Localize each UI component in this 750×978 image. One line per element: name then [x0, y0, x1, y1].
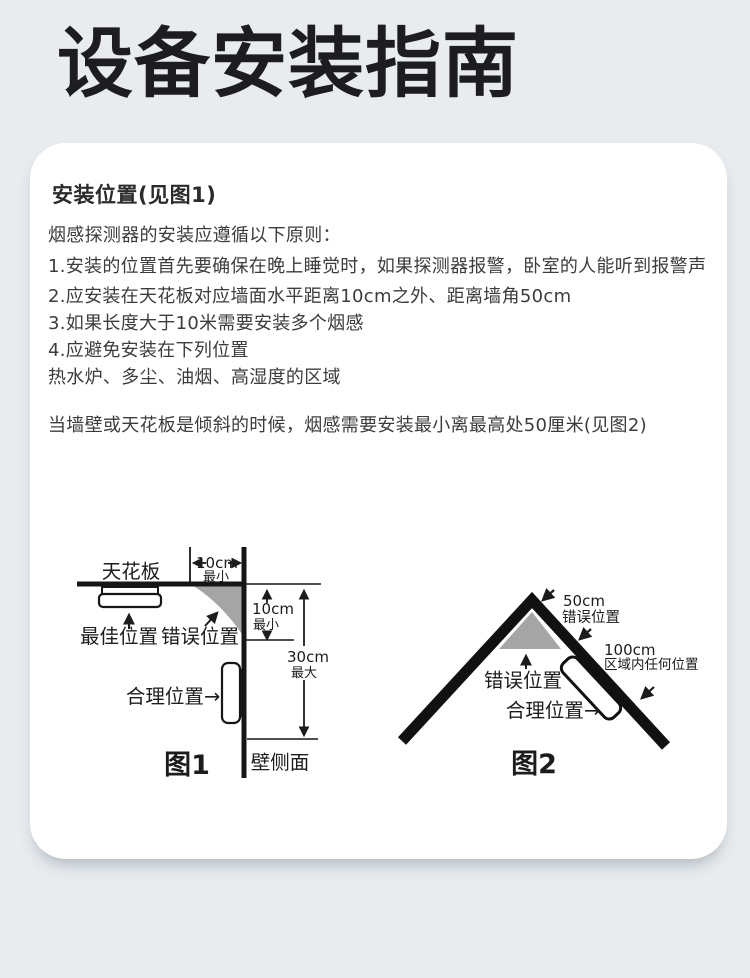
- fig1-ceiling-label: 天花板: [102, 560, 161, 583]
- figure2-diagram: 50cm 错误位置 100cm 区域内任何位置 错误位置 合理位置→ 图2: [385, 585, 715, 785]
- fig1-reasonable-position-label: 合理位置→: [126, 685, 220, 708]
- page-title: 设备安装指南: [57, 20, 519, 107]
- fig1-wall-side-label: 壁侧面: [251, 751, 310, 774]
- rule-1: 1.安装的位置首先要确保在晚上睡觉时，如果探测器报警，卧室的人能听到报警声: [48, 252, 706, 278]
- fig2-reasonable-position-label: 合理位置→: [506, 699, 600, 722]
- fig2-zone-arrow-icon: [580, 629, 591, 639]
- fig2-caption: 图2: [511, 749, 557, 780]
- fig2-apex-wrong-label: 错误位置: [562, 609, 620, 626]
- rule-4: 4.应避免安装在下列位置: [48, 336, 249, 362]
- fig1-height-dim-max: 最大: [291, 666, 317, 681]
- content-card: 安装位置(见图1) 烟感探测器的安装应遵循以下原则： 1.安装的位置首先要确保在…: [30, 143, 727, 859]
- fig1-ceiling-detector-body: [99, 594, 161, 607]
- section-intro: 烟感探测器的安装应遵循以下原则：: [48, 221, 341, 247]
- fig2-apex-arrow-icon: [543, 590, 554, 600]
- fig1-caption: 图1: [164, 750, 210, 781]
- fig1-wrong-position-label: 错误位置: [161, 625, 239, 648]
- figure1-diagram: 10cm 最小 天花板 最佳位置 错误位置 10cm 最小 30cm 最大: [60, 542, 340, 782]
- section-heading: 安装位置(见图1): [52, 179, 216, 209]
- fig1-best-position-label: 最佳位置: [80, 625, 158, 648]
- fig1-right-dim-min: 最小: [253, 618, 279, 633]
- rule-3: 3.如果长度大于10米需要安装多个烟感: [48, 309, 364, 335]
- slope-note: 当墙壁或天花板是倾斜的时候，烟感需要安装最小离最高处50厘米(见图2): [48, 411, 647, 437]
- fig1-top-dim-min: 最小: [203, 570, 229, 585]
- fig1-wall-detector-body: [222, 663, 240, 723]
- fig1-right-dim-value: 10cm: [252, 600, 294, 618]
- rule-avoid-areas: 热水炉、多尘、油烟、高湿度的区域: [48, 363, 341, 389]
- fig1-height-dim-value: 30cm: [287, 648, 329, 666]
- rule-2: 2.应安装在天花板对应墙面水平距离10cm之外、距离墙角50cm: [48, 282, 571, 308]
- fig2-zone-anywhere-label: 区域内任何位置: [604, 657, 699, 673]
- fig2-lower-slope-arrow-icon: [642, 687, 654, 698]
- fig2-wrong-position-label: 错误位置: [484, 669, 562, 692]
- fig2-apex-dim-value: 50cm: [563, 592, 605, 610]
